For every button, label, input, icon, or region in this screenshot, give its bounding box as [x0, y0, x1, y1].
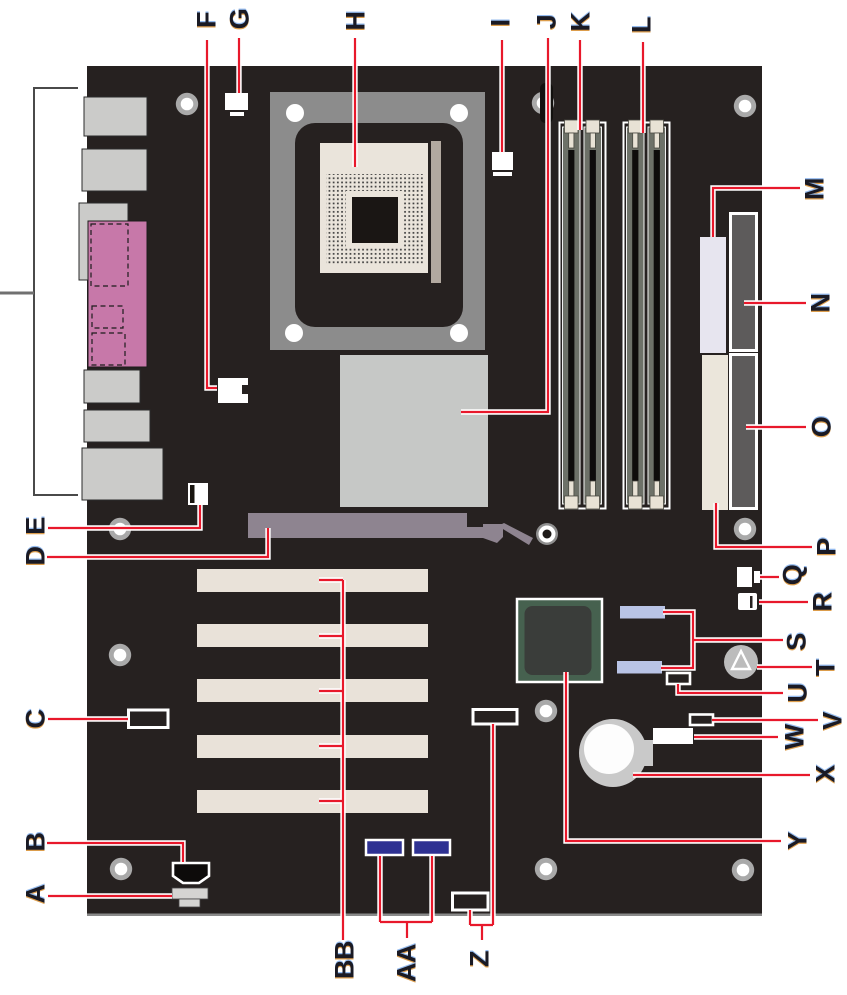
callout-label-t: T	[813, 660, 840, 676]
connector-b	[173, 863, 209, 883]
fan-header-i-body	[492, 152, 513, 170]
motherboard-location-diagram: A B C D E F G H I J K L M N O P Q R S T …	[0, 0, 847, 995]
callout-label-bb: BB	[332, 941, 359, 979]
header-r-body	[738, 593, 757, 610]
dimm-latch-top-stem	[569, 133, 574, 148]
callout-label-a: A	[23, 885, 50, 904]
callout-label-n: N	[808, 294, 835, 313]
header-w	[653, 728, 693, 744]
pci-slot-2	[197, 624, 428, 647]
front-panel-header-upper	[473, 710, 517, 725]
fan-header-f-notch	[242, 385, 249, 394]
callout-label-g: G	[227, 9, 254, 30]
dimm-latch-bottom-stem	[654, 481, 659, 496]
dimm-slot-channel	[568, 150, 574, 481]
callout-label-l: L	[629, 17, 656, 33]
back-panel-audio-block	[88, 221, 147, 367]
fan-header-g-body	[225, 93, 248, 110]
agp-slot-step	[467, 527, 483, 538]
usb-header-1	[366, 840, 403, 855]
back-panel-connector-7	[82, 448, 163, 500]
back-panel-bracket	[34, 88, 78, 495]
back-panel-connector-1	[84, 97, 147, 136]
usb-header-2	[413, 840, 450, 855]
dimm-latch-bottom-stem	[569, 481, 574, 496]
agp-mount-hole-center	[543, 530, 552, 539]
battery-cell	[584, 724, 634, 774]
header-r-key	[750, 596, 753, 608]
ide-connector-o	[731, 355, 757, 509]
mch-heatsink	[340, 355, 488, 507]
connector-a-tab	[179, 899, 200, 907]
retention-hole-2	[450, 104, 468, 122]
callout-label-k: K	[568, 13, 595, 32]
callout-label-y: Y	[785, 832, 812, 850]
dimm-slot	[648, 120, 666, 509]
dimm-latch-bottom	[586, 496, 600, 509]
retention-hole-1	[286, 104, 304, 122]
board-bottom-edge	[87, 914, 762, 917]
dimm-latch-top-stem	[654, 133, 659, 148]
callout-label-m: M	[802, 178, 829, 200]
callout-label-p: P	[814, 538, 841, 556]
callout-label-s: S	[784, 633, 811, 651]
callout-label-f: F	[194, 12, 221, 28]
pci-slot-3	[197, 679, 428, 702]
callout-label-i: I	[488, 19, 515, 26]
header-c	[129, 710, 169, 728]
retention-hole-3	[285, 324, 303, 342]
callout-label-x: X	[813, 765, 840, 783]
dimm-slot	[584, 120, 602, 509]
screw-hole	[732, 859, 754, 881]
dimm-latch-top	[565, 120, 579, 133]
header-v	[690, 715, 713, 726]
battery-holder-tab	[640, 740, 653, 766]
callout-label-aa: AA	[394, 944, 421, 982]
dimm-latch-top	[650, 120, 664, 133]
header-q-body	[737, 567, 752, 587]
dimm-latch-bottom	[629, 496, 643, 509]
screw-hole	[535, 858, 557, 880]
socket-lever-bar	[431, 141, 441, 283]
callout-label-r: R	[810, 593, 837, 612]
cpu-socket-center	[352, 197, 398, 243]
dimm-slot-channel	[632, 150, 638, 481]
callout-label-c: C	[23, 710, 50, 729]
back-panel-connector-2	[82, 149, 147, 191]
callout-label-q: Q	[780, 565, 807, 586]
sata-connector-1	[620, 606, 665, 619]
header-e-key	[190, 485, 195, 503]
dimm-latch-top-stem	[590, 133, 595, 148]
dimm-latch-bottom	[565, 496, 579, 509]
dimm-latch-bottom	[650, 496, 664, 509]
dimm-slot	[627, 120, 645, 509]
header-q-tab	[754, 571, 760, 583]
speaker	[724, 645, 758, 679]
fan-header-i	[492, 152, 513, 176]
fan-header-i-tab	[493, 172, 512, 176]
fan-header-g-tab	[230, 112, 244, 116]
screw-hole	[734, 95, 756, 117]
callout-label-u: U	[785, 684, 812, 703]
screw-hole	[535, 700, 557, 722]
header-u	[667, 673, 690, 684]
header-e	[188, 483, 208, 505]
fan-header-f	[218, 378, 249, 403]
callout-label-b: B	[23, 833, 50, 852]
connector-p	[702, 355, 728, 510]
screw-hole	[176, 93, 198, 115]
screw-hole	[110, 858, 132, 880]
dimm-slot-channel	[590, 150, 596, 481]
diagram-canvas	[0, 0, 847, 995]
agp-slot	[248, 513, 467, 538]
dimm-latch-bottom-stem	[590, 481, 595, 496]
callout-label-d: D	[23, 547, 50, 566]
callout-label-o: O	[809, 417, 836, 438]
screw-hole	[734, 518, 756, 540]
callout-label-z: Z	[467, 951, 494, 967]
pci-slot-5	[197, 790, 428, 813]
callout-label-w: W	[782, 725, 809, 750]
screw-hole	[109, 644, 131, 666]
connector-a-body	[172, 888, 208, 899]
connector-n	[731, 214, 757, 351]
pci-slot-1	[197, 569, 428, 592]
front-panel-header-lower	[453, 893, 489, 910]
power-connector-m	[700, 237, 726, 353]
callout-label-v: V	[820, 712, 847, 730]
dimm-slot-channel	[654, 150, 660, 481]
callout-label-h: H	[343, 12, 370, 31]
dimm-slot	[563, 120, 581, 509]
dimm-latch-bottom-stem	[633, 481, 638, 496]
callout-label-j: J	[534, 15, 561, 30]
pci-slot-4	[197, 735, 428, 758]
dimm-latch-top	[586, 120, 600, 133]
retention-hole-4	[450, 324, 468, 342]
chipset-die	[525, 606, 592, 675]
dimm-latch-top-stem	[633, 133, 638, 148]
dimm-latch-top	[629, 120, 643, 133]
header-r	[738, 593, 757, 610]
back-panel-connector-5	[84, 370, 140, 403]
cpu-area	[270, 92, 485, 350]
callout-label-e: E	[23, 517, 50, 535]
sata-connector-2	[617, 661, 662, 674]
back-panel-connector-6	[84, 410, 150, 442]
